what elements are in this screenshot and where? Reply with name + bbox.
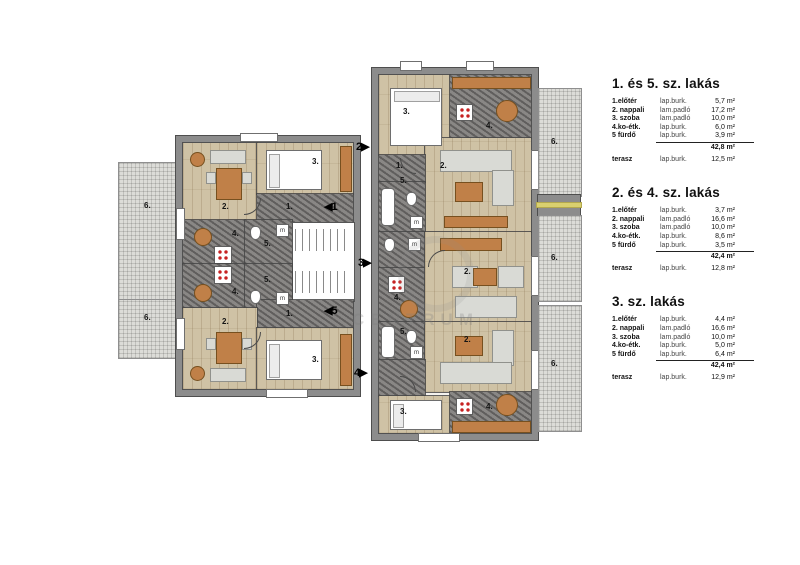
apt2-kitchen-counter xyxy=(452,77,531,89)
apt4-toilet xyxy=(406,330,417,344)
apt4-stove xyxy=(456,398,473,415)
room-name: 5 fürdő xyxy=(612,242,658,251)
room-name: 4.ko-étk. xyxy=(612,342,658,351)
apt1-kitchen-table xyxy=(194,228,212,246)
total-area: 42,4 m² xyxy=(699,253,735,262)
room-area: 8,6 m² xyxy=(699,233,735,242)
apt2-kitchen-label: 4. xyxy=(486,122,493,130)
apt5-entry-label: 1. xyxy=(286,310,293,318)
terrace-finish: lap.burk. xyxy=(660,374,697,383)
apt1-entry-label: 1. xyxy=(286,203,293,211)
stairwell xyxy=(292,222,355,302)
apt1-bedroom-label: 3. xyxy=(312,158,319,166)
apt4-kitchen-label: 4. xyxy=(486,403,493,411)
apt1-chair-left xyxy=(206,172,216,184)
entry-arrow-apt1: ◀1 xyxy=(324,202,337,213)
apt3-toilet xyxy=(384,238,395,252)
total-spacer xyxy=(660,362,697,371)
room-area: 3,7 m² xyxy=(699,207,735,216)
room-name: 3. szoba xyxy=(612,334,658,343)
legend-row: 5 fürdő lap.burk. 3,5 m² xyxy=(612,242,754,251)
room-finish: lap.burk. xyxy=(660,233,697,242)
apt1-bed-pillow xyxy=(269,154,280,188)
legend-row: 1.előtér lap.burk. 4,4 m² xyxy=(612,316,754,325)
total-spacer xyxy=(660,144,697,153)
room-name: 2. nappali xyxy=(612,216,658,225)
room-finish: lam.padló xyxy=(660,115,697,124)
entry-arrow-apt2: 2▶ xyxy=(356,142,369,153)
legend-total-row: 42,4 m² xyxy=(612,362,754,371)
room-name: 4.ko-étk. xyxy=(612,233,658,242)
terrace-finish: lap.burk. xyxy=(660,265,697,274)
room-finish: lap.burk. xyxy=(660,98,697,107)
entry-arrow-apt3: 3▶ xyxy=(358,258,371,269)
apt1-bath-label: 5. xyxy=(264,240,271,248)
apt3-armchair-right xyxy=(498,266,524,288)
total-area: 42,4 m² xyxy=(699,362,735,371)
stair-flight-down xyxy=(295,271,350,293)
apt2-bedroom-label: 3. xyxy=(403,108,410,116)
apt1-living-label: 2. xyxy=(222,203,229,211)
legend-total-rule xyxy=(656,251,754,252)
apt5-stove xyxy=(214,266,232,284)
room-area: 3,9 m² xyxy=(699,132,735,141)
terrace-apt3 xyxy=(538,215,582,302)
entry-arrow-apt5: ◀5 xyxy=(324,306,337,317)
room-finish: lap.burk. xyxy=(660,351,697,360)
window xyxy=(240,133,278,142)
legend-title: 1. és 5. sz. lakás xyxy=(612,76,754,91)
apt2-living-label: 2. xyxy=(440,162,447,170)
room-finish: lam.padló xyxy=(660,216,697,225)
apt1-kitchen-label: 4. xyxy=(232,230,239,238)
legend-terrace-row: terasz lap.burk. 12,5 m² xyxy=(612,156,754,165)
legend-row: 3. szoba lam.padló 10,0 m² xyxy=(612,115,754,124)
apt4-kitchen-table xyxy=(496,394,518,416)
apt2-sofa-horizontal xyxy=(440,150,512,172)
room-area: 10,0 m² xyxy=(699,334,735,343)
room-finish: lam.padló xyxy=(660,107,697,116)
legend-terrace-row: terasz lap.burk. 12,9 m² xyxy=(612,374,754,383)
legend-title: 2. és 4. sz. lakás xyxy=(612,185,754,200)
room-area: 6,4 m² xyxy=(699,351,735,360)
apt2-kitchen-table xyxy=(496,100,518,122)
apt5-living-label: 2. xyxy=(222,318,229,326)
total-spacer xyxy=(612,253,658,262)
apt1-entry-hall xyxy=(257,194,353,222)
room-finish: lap.burk. xyxy=(660,316,697,325)
apt4-living-label: 2. xyxy=(464,336,471,344)
terrace-finish: lap.burk. xyxy=(660,156,697,165)
apt5-bath-label: 5. xyxy=(264,276,271,284)
room-area: 4,4 m² xyxy=(699,316,735,325)
stair-flight-up xyxy=(295,229,350,251)
window xyxy=(266,389,308,398)
terrace-apt1-label: 6. xyxy=(144,202,151,210)
apt2-bath-label: 5. xyxy=(400,177,407,185)
room-finish: lap.burk. xyxy=(660,242,697,251)
legend-row: 5 fürdő lap.burk. 3,9 m² xyxy=(612,132,754,141)
legend-row: 4.ko-étk. lap.burk. 5,0 m² xyxy=(612,342,754,351)
room-area: 5,7 m² xyxy=(699,98,735,107)
room-name: 2. nappali xyxy=(612,107,658,116)
apt1-sofa xyxy=(210,150,246,164)
watermark-text: CENTRUM xyxy=(352,310,479,330)
apt2-toilet xyxy=(406,192,417,206)
apt5-bed-pillow xyxy=(269,344,280,378)
legend-row: 2. nappali lam.padló 16,6 m² xyxy=(612,325,754,334)
total-area: 42,8 m² xyxy=(699,144,735,153)
legend-title: 3. sz. lakás xyxy=(612,294,754,309)
terrace-area: 12,8 m² xyxy=(699,265,735,274)
room-name: 1.előtér xyxy=(612,316,658,325)
terrace-apt2-label: 6. xyxy=(551,138,558,146)
apt2-coffee-table xyxy=(455,182,483,202)
terrace-door xyxy=(176,208,185,240)
apt3-kitchen-label: 4. xyxy=(394,294,401,302)
apt5-chair-left xyxy=(206,338,216,350)
apt1-washer: m xyxy=(276,224,289,237)
room-area: 3,5 m² xyxy=(699,242,735,251)
apt5-dining-table xyxy=(216,332,242,364)
room-finish: lap.burk. xyxy=(660,342,697,351)
terrace-area: 12,5 m² xyxy=(699,156,735,165)
room-name: 1.előtér xyxy=(612,98,658,107)
legend-block-apt2-4: 2. és 4. sz. lakás 1.előtér lap.burk. 3,… xyxy=(612,185,754,273)
legend-row: 4.ko-étk. lap.burk. 6,0 m² xyxy=(612,124,754,133)
apt4-sofa-vertical xyxy=(492,330,514,366)
room-area: 17,2 m² xyxy=(699,107,735,116)
apt4-bathtub xyxy=(381,326,395,358)
terrace-apt3-label: 6. xyxy=(551,254,558,262)
apt5-kitchen-label: 4. xyxy=(232,288,239,296)
terrace-name: terasz xyxy=(612,374,658,383)
room-finish: lap.burk. xyxy=(660,207,697,216)
legend-block-apt3: 3. sz. lakás 1.előtér lap.burk. 4,4 m² 2… xyxy=(612,294,754,382)
room-name: 3. szoba xyxy=(612,224,658,233)
apt1-dining-table xyxy=(216,168,242,200)
total-spacer xyxy=(612,144,658,153)
apt4-kitchen-counter xyxy=(452,421,531,433)
legend-row: 1.előtér lap.burk. 5,7 m² xyxy=(612,98,754,107)
room-name: 1.előtér xyxy=(612,207,658,216)
apt1-stove xyxy=(214,246,232,264)
room-name: 4.ko-étk. xyxy=(612,124,658,133)
apt2-bed xyxy=(390,88,442,146)
apt5-washer: m xyxy=(276,292,289,305)
terrace-apt4-label: 6. xyxy=(551,360,558,368)
apt5-wardrobe xyxy=(340,334,352,386)
apt5-entry-hall xyxy=(257,300,353,328)
legend-terrace-row: terasz lap.burk. 12,8 m² xyxy=(612,265,754,274)
apt2-sofa-vertical xyxy=(492,170,514,206)
apt1-wardrobe xyxy=(340,146,352,192)
apt5-sofa xyxy=(210,368,246,382)
terrace-door xyxy=(176,318,185,350)
room-name: 2. nappali xyxy=(612,325,658,334)
apt4-washer: m xyxy=(410,346,423,359)
room-area: 5,0 m² xyxy=(699,342,735,351)
apt5-armchair xyxy=(190,366,205,381)
apt4-bedroom-label: 3. xyxy=(400,408,407,416)
total-spacer xyxy=(660,253,697,262)
watermark-logo xyxy=(398,236,474,312)
apt2-sideboard xyxy=(444,216,508,228)
terrace-divider-line xyxy=(536,202,582,208)
room-area: 16,6 m² xyxy=(699,216,735,225)
room-name: 5 fürdő xyxy=(612,132,658,141)
apt1-chair-right xyxy=(242,172,252,184)
terrace-apt4 xyxy=(538,305,582,432)
apt1-toilet xyxy=(250,226,261,240)
apt5-bedroom-label: 3. xyxy=(312,356,319,364)
apt2-stove xyxy=(456,104,473,121)
apt5-kitchen-table xyxy=(194,284,212,302)
apt2-bed-pillow xyxy=(394,91,440,102)
apt4-bed xyxy=(390,400,442,430)
window xyxy=(466,61,494,71)
room-name: 5 fürdő xyxy=(612,351,658,360)
window xyxy=(418,433,460,442)
terrace-apt5-label: 6. xyxy=(144,314,151,322)
room-area: 10,0 m² xyxy=(699,224,735,233)
apt1-bed xyxy=(266,150,322,190)
legend-row: 3. szoba lam.padló 10,0 m² xyxy=(612,334,754,343)
terrace-name: terasz xyxy=(612,156,658,165)
legend-block-apt1-5: 1. és 5. sz. lakás 1.előtér lap.burk. 5,… xyxy=(612,76,754,164)
apt4-sofa-horizontal xyxy=(440,362,512,384)
apt5-toilet xyxy=(250,290,261,304)
room-finish: lam.padló xyxy=(660,325,697,334)
room-area: 16,6 m² xyxy=(699,325,735,334)
room-finish: lam.padló xyxy=(660,334,697,343)
room-finish: lap.burk. xyxy=(660,132,697,141)
legend-row: 2. nappali lam.padló 17,2 m² xyxy=(612,107,754,116)
apt3-coffee-table xyxy=(473,268,497,286)
room-finish: lap.burk. xyxy=(660,124,697,133)
terrace-apt1 xyxy=(118,162,180,301)
terrace-area: 12,9 m² xyxy=(699,374,735,383)
entry-arrow-apt4: 4▶ xyxy=(354,368,367,379)
legend-row: 4.ko-étk. lap.burk. 8,6 m² xyxy=(612,233,754,242)
legend-row: 3. szoba lam.padló 10,0 m² xyxy=(612,224,754,233)
total-spacer xyxy=(612,362,658,371)
room-area: 6,0 m² xyxy=(699,124,735,133)
window xyxy=(400,61,422,71)
legend-row: 5 fürdő lap.burk. 6,4 m² xyxy=(612,351,754,360)
room-area: 10,0 m² xyxy=(699,115,735,124)
terrace-apt5 xyxy=(118,299,180,359)
room-finish: lam.padló xyxy=(660,224,697,233)
apt2-washer: m xyxy=(410,216,423,229)
apt1-armchair xyxy=(190,152,205,167)
legend-total-row: 42,8 m² xyxy=(612,144,754,153)
terrace-name: terasz xyxy=(612,265,658,274)
room-name: 3. szoba xyxy=(612,115,658,124)
terrace-apt2 xyxy=(538,88,582,197)
legend-row: 1.előtér lap.burk. 3,7 m² xyxy=(612,207,754,216)
legend-total-rule xyxy=(656,360,754,361)
legend-row: 2. nappali lam.padló 16,6 m² xyxy=(612,216,754,225)
legend-panel: 1. és 5. sz. lakás 1.előtér lap.burk. 5,… xyxy=(612,76,754,403)
apt2-bathtub xyxy=(381,188,395,226)
legend-total-row: 42,4 m² xyxy=(612,253,754,262)
legend-total-rule xyxy=(656,142,754,143)
